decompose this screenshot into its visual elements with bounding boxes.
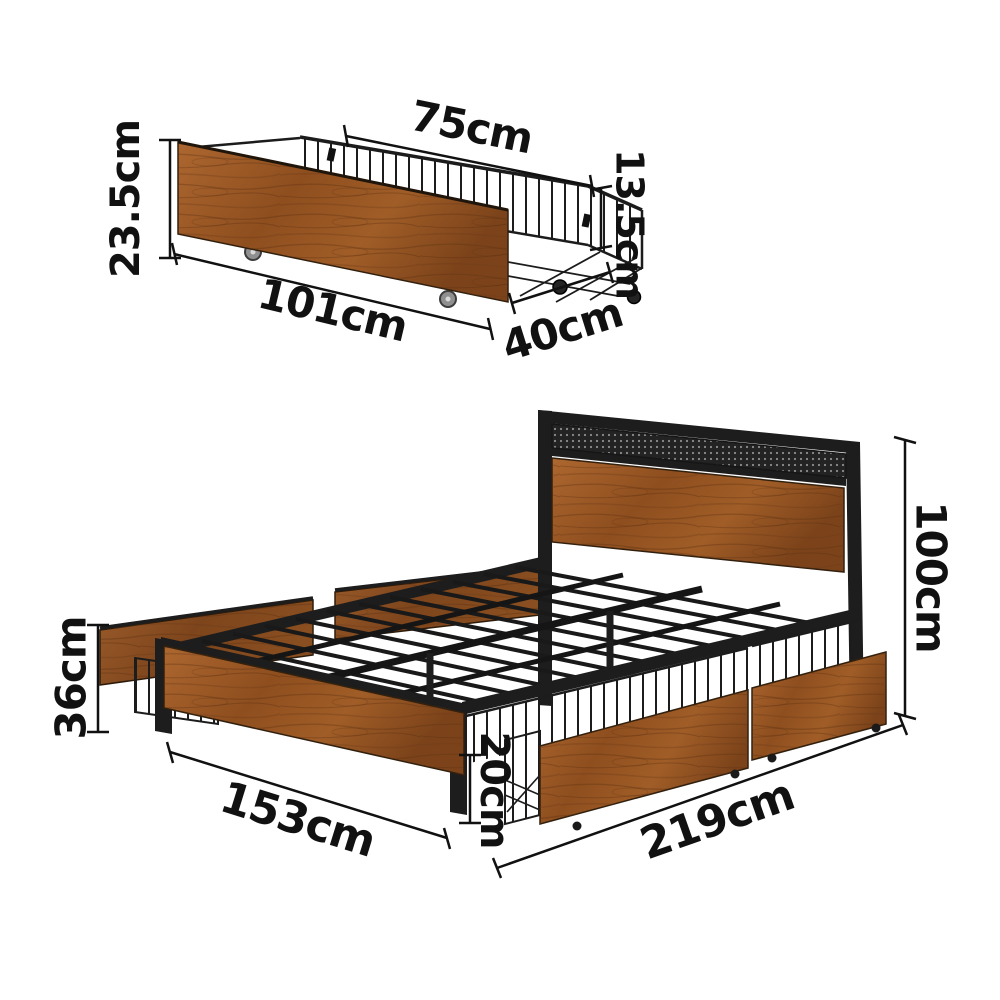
caster-hub [446, 297, 451, 302]
drawer-wheel [872, 724, 881, 733]
drawer-wheel [731, 770, 740, 779]
drawer-length-label: 101cm [253, 269, 412, 352]
drawer-unit-diagram [178, 137, 642, 307]
drawer-wheel [768, 754, 777, 763]
bed-side-height-label: 36cm [47, 616, 96, 739]
bed-width-label: 153cm [214, 772, 381, 868]
bed-headboard-height-label: 100cm [907, 501, 956, 652]
drawer-basket-height-label: 13.5cm [608, 149, 652, 299]
drawer-front-height-label: 23.5cm [103, 120, 149, 278]
product-dimension-diagram: 23.5cm 75cm 13.5cm 101cm 40cm 36cm 153cm… [0, 0, 1000, 1000]
bed-drawer-height-label: 20cm [471, 731, 517, 848]
diagram-svg: 23.5cm 75cm 13.5cm 101cm 40cm 36cm 153cm… [0, 0, 1000, 1000]
drawer-wheel [573, 822, 582, 831]
drawer-depth-label: 40cm [496, 287, 628, 371]
